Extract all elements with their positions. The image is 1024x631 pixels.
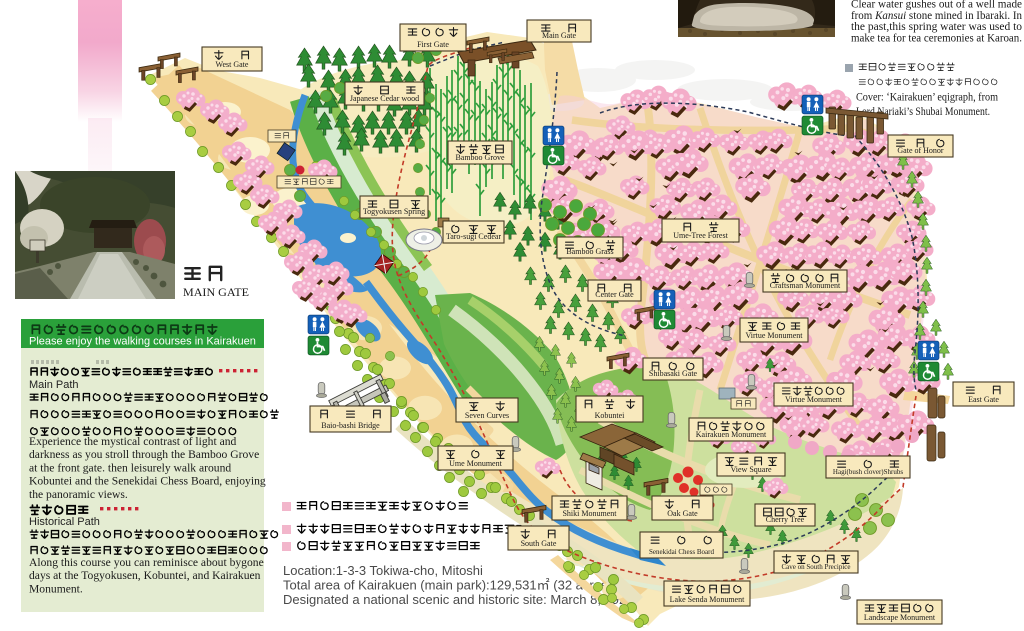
svg-text:Virtue Monument: Virtue Monument: [785, 395, 843, 404]
svg-text:Please enjoy the walking cours: Please enjoy the walking courses in Kair…: [29, 336, 256, 348]
svg-text:Total area of Kairakuen (main: Total area of Kairakuen (main park):129,…: [283, 578, 612, 593]
svg-text:Japanese Cedar wood: Japanese Cedar wood: [350, 94, 419, 103]
svg-text:Lake Senda Monument: Lake Senda Monument: [670, 595, 745, 604]
svg-text:Oak Gate: Oak Gate: [667, 509, 698, 518]
svg-text:MAIN GATE: MAIN GATE: [183, 287, 249, 299]
svg-text:Cherry Tree: Cherry Tree: [766, 515, 805, 524]
svg-text:Kobuntei: Kobuntei: [595, 411, 626, 420]
svg-text:Seven Curves: Seven Curves: [465, 411, 509, 420]
svg-text:Ume Monument: Ume Monument: [449, 459, 502, 468]
svg-text:Designated a national scenic a: Designated a national scenic and histori…: [283, 592, 633, 607]
svg-text:Shiki Monument: Shiki Monument: [562, 509, 617, 518]
svg-text:Kairakuen Monument: Kairakuen Monument: [696, 430, 767, 439]
svg-text:Togyokusen Spring: Togyokusen Spring: [363, 207, 425, 216]
svg-text:Cave on South Precipice: Cave on South Precipice: [781, 563, 850, 571]
svg-text:Craftsman Monument: Craftsman Monument: [770, 281, 841, 290]
svg-text:Virtue Monument: Virtue Monument: [745, 331, 803, 340]
svg-text:Main Gate: Main Gate: [542, 31, 576, 40]
svg-text:Shibasaki Gate: Shibasaki Gate: [649, 369, 698, 378]
svg-text:Cover: ‘Kairakuen’ eqigraph,: Cover: ‘Kairakuen’ eqigraph, from: [856, 91, 998, 104]
svg-text:at the front gate. then leisur: at the front gate. then leisurely walk a…: [29, 461, 231, 474]
svg-text:darkness as you stroll through: darkness as you stroll through the Bambo…: [29, 448, 259, 461]
svg-text:Taro-sugi Cedear: Taro-sugi Cedear: [446, 232, 502, 241]
svg-text:Monument.: Monument.: [29, 582, 83, 595]
svg-text:South Gate: South Gate: [521, 539, 557, 548]
svg-text:Ume-Tree Forest: Ume-Tree Forest: [673, 231, 728, 240]
svg-text:Hagi(bush clover)Shrubs: Hagi(bush clover)Shrubs: [833, 468, 903, 476]
svg-text:days at the Togyokusen, Kobunt: days at the Togyokusen, Kobuntei, and Ka…: [29, 569, 261, 582]
svg-text:make tea for tea ceremonies at: make tea for tea ceremonies at Karoan.: [851, 32, 1022, 44]
svg-text:Experience the mystical contra: Experience the mystical contrast of ligh…: [29, 435, 237, 448]
svg-text:Landscape Monument: Landscape Monument: [864, 613, 936, 622]
svg-text:View Square: View Square: [730, 465, 772, 474]
svg-text:Main Path: Main Path: [29, 379, 79, 391]
svg-text:the past,this spring water was: the past,this spring water was used to: [851, 21, 1022, 33]
svg-text:from Kansui stone mined in Iba: from Kansui stone mined in Ibaraki. In: [851, 10, 1022, 22]
svg-text:Bamboo Grove: Bamboo Grove: [455, 153, 505, 162]
svg-text:Along this course you can remi: Along this course you can reminisce abou…: [29, 556, 264, 569]
svg-text:East Gate: East Gate: [968, 395, 999, 404]
svg-text:Bamboo Grass: Bamboo Grass: [566, 247, 613, 256]
svg-text:Historical Path: Historical Path: [29, 516, 100, 528]
svg-text:Location:1-3-3 Tokiwa-cho, Mit: Location:1-3-3 Tokiwa-cho, Mitoshi: [283, 563, 483, 578]
svg-text:West Gate: West Gate: [216, 60, 249, 69]
svg-text:Center Gate: Center Gate: [595, 290, 634, 299]
svg-text:the panoramic views.: the panoramic views.: [29, 488, 128, 501]
svg-text:Kobuntei and the Senekidai Che: Kobuntei and the Senekidai Chess Board, …: [29, 475, 266, 488]
svg-text:Baio-bashi Bridge: Baio-bashi Bridge: [321, 421, 380, 430]
svg-text:First Gate: First Gate: [417, 40, 449, 49]
svg-text:Gate of Honor: Gate of Honor: [897, 146, 944, 155]
svg-text:Senekidai Chess Board: Senekidai Chess Board: [649, 548, 714, 556]
